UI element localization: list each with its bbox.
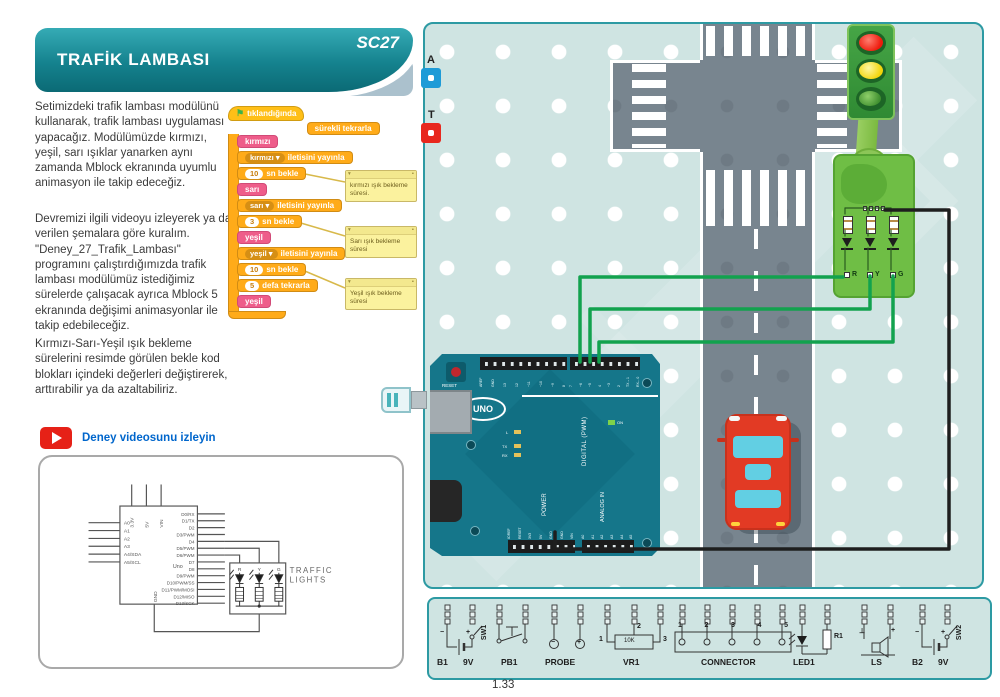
probe-label: PROBE bbox=[545, 657, 575, 667]
block-stack: kırmızı kırmızı ▾ iletisini yayınla 10 s… bbox=[237, 135, 353, 311]
dropdown-caret-icon: ▾ bbox=[265, 201, 269, 210]
note-mark-icon[interactable]: ▪ bbox=[412, 279, 414, 286]
sw1-label: SW1 bbox=[481, 625, 488, 640]
svg-text:D11/PWM/MOSI: D11/PWM/MOSI bbox=[162, 587, 195, 592]
when-flag-clicked-block[interactable]: ⚑ tıklandığında bbox=[228, 106, 304, 121]
wiring bbox=[425, 24, 982, 587]
ls-ground: ⊥ bbox=[859, 627, 865, 635]
marker-a bbox=[421, 68, 441, 88]
svg-text:D2: D2 bbox=[189, 526, 195, 531]
marker-a-label: A bbox=[427, 54, 435, 66]
component-legend-strip: B1 9V − + SW1 PB1 PROBE − + VR1 10K 1 2 … bbox=[427, 597, 992, 680]
green-wire-yellow-led bbox=[590, 276, 870, 362]
probe-plus: + bbox=[577, 639, 581, 646]
schem-led-y: Y bbox=[258, 567, 262, 573]
hat-label: tıklandığında bbox=[247, 109, 296, 118]
connector-label: CONNECTOR bbox=[701, 657, 756, 667]
svg-text:A3: A3 bbox=[124, 544, 130, 550]
svg-text:D9/PWM: D9/PWM bbox=[176, 574, 194, 579]
wait-value[interactable]: 3 bbox=[245, 217, 259, 227]
vr1-pin2: 2 bbox=[637, 623, 641, 630]
note-collapse-icon[interactable]: ▾ bbox=[348, 227, 351, 234]
dropdown-caret-icon: ▾ bbox=[269, 249, 273, 258]
green-wire-green-led bbox=[599, 276, 893, 362]
comment-note-red[interactable]: ▾▪ kırmızı ışık bekleme süresi. bbox=[345, 170, 417, 202]
svg-text:A5/SCL: A5/SCL bbox=[124, 560, 141, 566]
play-icon[interactable] bbox=[40, 427, 72, 449]
note-collapse-icon[interactable]: ▾ bbox=[348, 171, 351, 178]
note-mark-icon[interactable]: ▪ bbox=[412, 171, 414, 178]
svg-text:LIGHTS: LIGHTS bbox=[290, 576, 327, 585]
note-collapse-icon[interactable]: ▾ bbox=[348, 279, 351, 286]
svg-text:VIN: VIN bbox=[159, 519, 165, 528]
svg-text:D8: D8 bbox=[189, 567, 195, 572]
pb1-label: PB1 bbox=[501, 657, 518, 667]
broadcast-block[interactable]: sarı ▾ iletisini yayınla bbox=[237, 199, 342, 212]
dropdown-caret-icon: ▾ bbox=[276, 153, 280, 162]
svg-text:A4/SDA: A4/SDA bbox=[124, 552, 142, 558]
wait-value[interactable]: 10 bbox=[245, 265, 263, 275]
wait-block[interactable]: 10 sn bekle bbox=[237, 263, 306, 276]
b1-minus: − bbox=[440, 629, 444, 636]
comment-note-green[interactable]: ▾▪ Yeşil ışık bekleme süresi bbox=[345, 278, 417, 310]
b1-voltage: 9V bbox=[463, 657, 473, 667]
ls-label: LS bbox=[871, 657, 882, 667]
worksheet-page: TRAFİK LAMBASI SC27 Setimizdeki trafik l… bbox=[0, 0, 1000, 697]
wait-block[interactable]: 3 sn bekle bbox=[237, 215, 302, 228]
forever-label: sürekli tekrarla bbox=[315, 124, 372, 133]
comment-note-yellow[interactable]: ▾▪ Sarı ışık bekleme süresi bbox=[345, 226, 417, 258]
sw2-label: SW2 bbox=[956, 625, 963, 640]
svg-text:GND: GND bbox=[153, 591, 159, 602]
video-link[interactable]: Deney videosunu izleyin bbox=[40, 427, 216, 449]
header-banner: TRAFİK LAMBASI SC27 bbox=[35, 28, 413, 96]
b2-voltage: 9V bbox=[938, 657, 948, 667]
svg-text:D7: D7 bbox=[189, 560, 195, 565]
vr1-pin3: 3 bbox=[663, 636, 667, 643]
marker-t-label: T bbox=[428, 109, 435, 121]
message-block[interactable]: yeşil bbox=[237, 231, 271, 244]
forever-cap bbox=[228, 311, 286, 319]
intro-paragraph-3: Kırmızı-Sarı-Yeşil ışık bekleme süreleri… bbox=[35, 337, 233, 398]
schem-led-g: G bbox=[277, 567, 281, 573]
vr1-pin1: 1 bbox=[599, 636, 603, 643]
svg-text:5V: 5V bbox=[144, 521, 150, 528]
schematic-drawing: A0 A1 A2 A3 A4/SDA A5/SCL 3.3V 5V VIN GN… bbox=[40, 457, 398, 663]
pegboard-panel: RESET AREFGND1312~11~10~98 7~6~54~32TX→1… bbox=[423, 22, 984, 589]
repeat-block[interactable]: 5 defa tekrarla bbox=[237, 279, 318, 292]
broadcast-block[interactable]: yeşil ▾ iletisini yayınla bbox=[237, 247, 345, 260]
schem-led-r: R bbox=[238, 567, 242, 573]
wait-value[interactable]: 10 bbox=[245, 169, 263, 179]
intro-paragraph-1: Setimizdeki trafik lambası modülünü kull… bbox=[35, 100, 233, 192]
green-flag-icon: ⚑ bbox=[236, 109, 244, 118]
schem-chip-label: Uno bbox=[173, 564, 183, 570]
circuit-schematic: A0 A1 A2 A3 A4/SDA A5/SCL 3.3V 5V VIN GN… bbox=[38, 455, 404, 669]
black-wire bbox=[555, 210, 949, 549]
forever-block[interactable]: sürekli tekrarla bbox=[307, 122, 380, 135]
svg-text:D6/PWM: D6/PWM bbox=[176, 553, 194, 558]
svg-text:3.3V: 3.3V bbox=[130, 517, 136, 528]
wait-block[interactable]: 10 sn bekle bbox=[237, 167, 306, 180]
note-mark-icon[interactable]: ▪ bbox=[412, 227, 414, 234]
repeat-value[interactable]: 5 bbox=[245, 281, 259, 291]
svg-text:A2: A2 bbox=[124, 536, 130, 542]
r1-label: R1 bbox=[834, 633, 843, 640]
svg-text:D12/MISO: D12/MISO bbox=[173, 594, 195, 599]
svg-text:D13/SCK: D13/SCK bbox=[176, 601, 195, 606]
usb-plug-stripe bbox=[387, 393, 391, 407]
usb-plug-stripe bbox=[394, 393, 398, 407]
message-block[interactable]: sarı bbox=[237, 183, 267, 196]
svg-text:D4: D4 bbox=[189, 539, 195, 544]
set-code: SC27 bbox=[356, 33, 399, 53]
vr1-value: 10K bbox=[624, 638, 635, 644]
broadcast-block[interactable]: kırmızı ▾ iletisini yayınla bbox=[237, 151, 353, 164]
usb-plug-tip bbox=[411, 391, 427, 409]
b2-plus: + bbox=[941, 629, 945, 636]
led1-label: LED1 bbox=[793, 657, 815, 667]
message-block[interactable]: yeşil bbox=[237, 295, 271, 308]
svg-text:D3/PWM: D3/PWM bbox=[176, 532, 194, 537]
intro-paragraph-2: Devremizi ilgili videoyu izleyerek ya da… bbox=[35, 212, 233, 334]
video-link-label[interactable]: Deney videosunu izleyin bbox=[82, 432, 216, 444]
marker-dot bbox=[428, 130, 434, 136]
svg-text:D1/TX: D1/TX bbox=[182, 519, 195, 524]
message-block[interactable]: kırmızı bbox=[237, 135, 278, 148]
b1-plus: + bbox=[466, 629, 470, 636]
schem-pin-label: A0 bbox=[124, 521, 130, 527]
svg-text:D10/PWM/SS: D10/PWM/SS bbox=[167, 581, 195, 586]
page-number: 1.33 bbox=[492, 679, 514, 691]
b2-minus: − bbox=[915, 629, 919, 636]
page-title: TRAFİK LAMBASI bbox=[57, 50, 210, 70]
probe-minus: − bbox=[551, 639, 555, 646]
marker-t bbox=[421, 123, 441, 143]
svg-text:D0/RX: D0/RX bbox=[181, 512, 194, 517]
marker-dot bbox=[428, 75, 434, 81]
green-wire-red-led bbox=[580, 277, 843, 362]
b1-label: B1 bbox=[437, 657, 448, 667]
svg-text:A1: A1 bbox=[124, 529, 130, 535]
connector-pin-numbers: 12345 bbox=[678, 622, 788, 629]
b2-label: B2 bbox=[912, 657, 923, 667]
ls-plus: + bbox=[891, 627, 895, 634]
traffic-lights-label: TRAFFIC bbox=[290, 566, 333, 575]
svg-text:D5/PWM: D5/PWM bbox=[176, 546, 194, 551]
usb-plug bbox=[381, 387, 411, 413]
vr1-label: VR1 bbox=[623, 657, 640, 667]
mblock-program: ⚑ tıklandığında sürekli tekrarla kırmızı… bbox=[228, 106, 420, 342]
